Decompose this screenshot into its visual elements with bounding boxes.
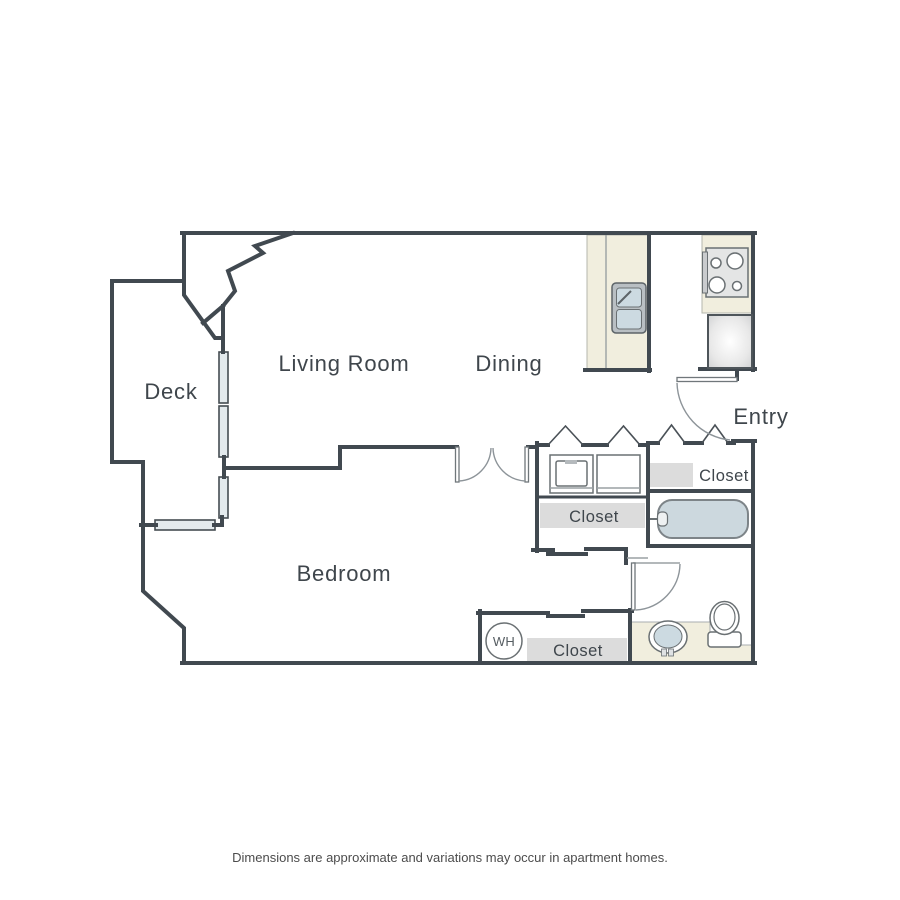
entry-closet-shelf [650,463,693,487]
entry-closet-label: Closet [699,467,749,485]
living-room-window [219,352,228,403]
bathroom-door-swing [632,563,681,610]
floor-plan: WH Deck Living Room Dining Entry Bedroom… [0,0,900,900]
sliding-doors-bedroom-closet [478,611,620,616]
burner-icon [709,277,725,293]
water-heater: WH [486,623,522,659]
french-doors [456,447,529,482]
angled-entry-wall [223,233,293,306]
toilet [708,602,741,648]
refrigerator [708,315,752,368]
entry-door-swing [677,378,737,441]
entry-label: Entry [733,404,788,429]
disclaimer-text: Dimensions are approximate and variation… [232,850,668,865]
kitchen-sink [612,283,646,333]
hall-closet-label: Closet [569,508,619,526]
bifold-doors-laundry-closet [548,426,640,445]
sliding-doors-hall-closet [533,549,648,563]
dryer [597,455,640,493]
bathtub [650,500,748,538]
burner-icon [727,253,743,269]
burner-icon [733,282,742,291]
living-room-label: Living Room [278,351,409,376]
bedroom-label: Bedroom [297,561,392,586]
living-room-window [219,406,228,457]
burner-icon [711,258,721,268]
bedroom-window-west [219,477,228,518]
washer-controls [565,460,577,464]
dining-label: Dining [475,351,542,376]
floor-plan-drawing: WH Deck Living Room Dining Entry Bedroom… [0,0,900,900]
bifold-doors-entry-closet [658,425,728,443]
water-heater-label: WH [493,634,515,649]
stove [703,248,749,297]
deck-label: Deck [144,379,198,404]
bedroom-window-north [155,520,215,530]
bedroom-closet-label: Closet [553,642,603,660]
washer [550,455,593,493]
